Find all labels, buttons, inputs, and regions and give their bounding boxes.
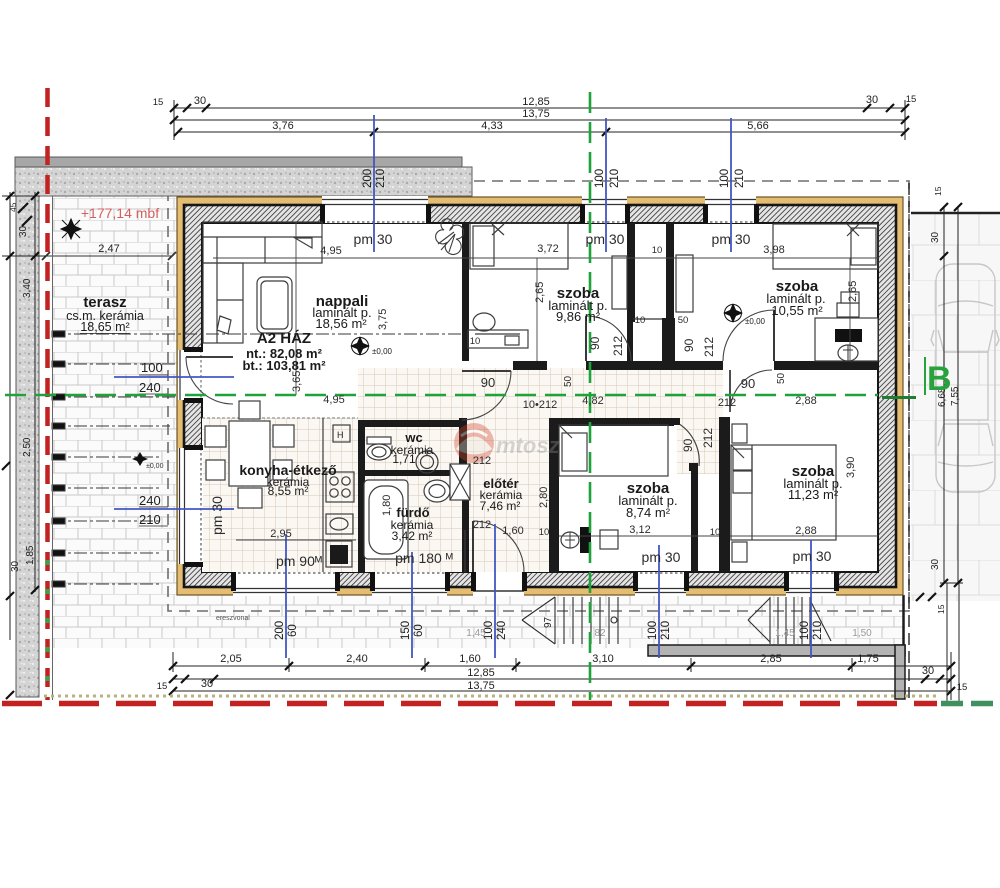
svg-text:90: 90 <box>741 376 755 391</box>
svg-text:4,82: 4,82 <box>582 395 603 407</box>
svg-text:3,12: 3,12 <box>629 524 650 536</box>
svg-text:30: 30 <box>866 94 878 106</box>
svg-text:200: 200 <box>274 621 286 640</box>
svg-text:13,75: 13,75 <box>522 108 550 120</box>
svg-text:10: 10 <box>635 315 646 326</box>
svg-text:15: 15 <box>957 682 968 693</box>
svg-text:pm 90ᴹ: pm 90ᴹ <box>276 553 322 569</box>
svg-text:50: 50 <box>776 372 787 384</box>
svg-text:bt.: 103,81 m²: bt.: 103,81 m² <box>242 358 326 373</box>
svg-text:45: 45 <box>8 202 18 212</box>
svg-text:2,88: 2,88 <box>795 525 816 537</box>
svg-text:60: 60 <box>287 624 299 637</box>
svg-text:2,40: 2,40 <box>346 653 367 665</box>
svg-text:+177,14 mbf: +177,14 mbf <box>81 205 159 221</box>
svg-text:1,50: 1,50 <box>852 628 872 639</box>
svg-text:30: 30 <box>18 225 29 237</box>
svg-text:13,75: 13,75 <box>467 680 495 692</box>
svg-text:9,86 m²: 9,86 m² <box>556 309 601 324</box>
svg-text:15: 15 <box>933 186 943 196</box>
svg-text:pm 30: pm 30 <box>354 231 393 247</box>
svg-text:H: H <box>337 430 344 440</box>
svg-text:3,72: 3,72 <box>537 243 558 255</box>
svg-text:11,23 m²: 11,23 m² <box>788 487 839 502</box>
svg-text:2,80: 2,80 <box>538 487 550 508</box>
svg-text:pm 30: pm 30 <box>793 548 832 564</box>
svg-text:3,42 m²: 3,42 m² <box>392 529 433 543</box>
svg-text:50: 50 <box>678 315 689 326</box>
svg-text:2,47: 2,47 <box>98 243 119 255</box>
svg-text:240: 240 <box>139 493 161 508</box>
svg-text:3,98: 3,98 <box>763 244 784 256</box>
svg-text:2,65: 2,65 <box>847 281 859 302</box>
svg-text:B: B <box>927 360 952 398</box>
svg-text:15: 15 <box>906 94 917 105</box>
svg-text:10: 10 <box>539 527 550 538</box>
svg-text:30: 30 <box>922 665 934 677</box>
svg-text:4,33: 4,33 <box>481 120 502 132</box>
svg-text:3,90: 3,90 <box>845 457 857 478</box>
svg-text:212: 212 <box>701 428 715 448</box>
svg-text:150: 150 <box>400 621 412 640</box>
svg-text:8,55 m²: 8,55 m² <box>268 484 309 498</box>
svg-text:7,55: 7,55 <box>950 386 961 406</box>
svg-text:240: 240 <box>496 621 508 640</box>
svg-text:100: 100 <box>647 621 659 640</box>
svg-text:210: 210 <box>812 621 824 640</box>
svg-text:97: 97 <box>543 616 554 628</box>
svg-text:30: 30 <box>194 95 206 107</box>
svg-text:210: 210 <box>660 621 672 640</box>
svg-text:100: 100 <box>141 360 163 375</box>
svg-text:60: 60 <box>413 624 425 637</box>
svg-text:A2 HÁZ: A2 HÁZ <box>257 330 311 347</box>
svg-text:2,50: 2,50 <box>22 437 33 457</box>
svg-text:12,85: 12,85 <box>522 96 550 108</box>
svg-text:pm 30: pm 30 <box>586 231 625 247</box>
svg-text:4,95: 4,95 <box>323 394 344 406</box>
svg-text:1,75: 1,75 <box>857 653 878 665</box>
svg-text:210: 210 <box>139 512 161 527</box>
svg-text:212: 212 <box>473 519 491 531</box>
svg-text:10: 10 <box>470 336 481 347</box>
svg-text:15: 15 <box>153 97 164 108</box>
svg-text:pm 180 ᴹ: pm 180 ᴹ <box>395 550 453 566</box>
svg-text:212: 212 <box>611 336 625 356</box>
svg-text:30: 30 <box>10 560 21 572</box>
svg-text:100: 100 <box>719 169 731 188</box>
svg-text:90: 90 <box>682 338 696 352</box>
svg-text:3,40: 3,40 <box>22 278 33 298</box>
svg-text:mtosz: mtosz <box>496 433 560 458</box>
svg-text:210: 210 <box>375 169 387 188</box>
svg-text:3,65: 3,65 <box>291 371 303 392</box>
svg-text:pm 30: pm 30 <box>642 549 681 565</box>
svg-text:1,71: 1,71 <box>392 452 416 466</box>
svg-text:1,80: 1,80 <box>381 495 393 516</box>
svg-text:18,56 m²: 18,56 m² <box>315 316 367 331</box>
svg-text:±0,00: ±0,00 <box>372 347 393 356</box>
svg-text:3,75: 3,75 <box>377 309 389 330</box>
svg-text:212: 212 <box>718 397 736 409</box>
svg-text:±0,00: ±0,00 <box>146 463 164 470</box>
svg-text:2,85: 2,85 <box>760 653 781 665</box>
svg-text:30: 30 <box>201 678 213 690</box>
svg-text:18,65 m²: 18,65 m² <box>80 320 129 334</box>
svg-text:1,45: 1,45 <box>466 628 486 639</box>
svg-text:30: 30 <box>930 558 941 570</box>
svg-text:12,85: 12,85 <box>467 667 495 679</box>
svg-text:100: 100 <box>799 621 811 640</box>
svg-text:1,60: 1,60 <box>459 653 480 665</box>
svg-text:pm 30: pm 30 <box>712 231 751 247</box>
svg-text:15: 15 <box>936 604 946 614</box>
svg-text:90: 90 <box>588 336 602 350</box>
svg-text:90: 90 <box>481 375 495 390</box>
svg-text:2,05: 2,05 <box>220 653 241 665</box>
svg-text:8,74 m²: 8,74 m² <box>626 505 671 520</box>
svg-text:200: 200 <box>362 169 374 188</box>
svg-text:1,45: 1,45 <box>775 628 795 639</box>
svg-text:10: 10 <box>652 245 663 256</box>
svg-text:30: 30 <box>930 231 941 243</box>
svg-text:10,55 m²: 10,55 m² <box>771 303 823 318</box>
svg-text:5,66: 5,66 <box>747 120 768 132</box>
svg-text:pm 30: pm 30 <box>209 496 225 535</box>
svg-text:50: 50 <box>563 375 574 387</box>
svg-text:7,46 m²: 7,46 m² <box>480 499 521 513</box>
svg-text:4,95: 4,95 <box>320 245 341 257</box>
svg-text:15: 15 <box>157 681 168 692</box>
svg-text:210: 210 <box>734 169 746 188</box>
svg-text:±0,00: ±0,00 <box>745 317 766 326</box>
svg-text:2,95: 2,95 <box>270 528 291 540</box>
svg-text:10•212: 10•212 <box>523 399 557 411</box>
svg-text:212: 212 <box>473 455 491 467</box>
svg-text:210: 210 <box>609 169 621 188</box>
svg-text:3,76: 3,76 <box>272 120 293 132</box>
svg-text:2,88: 2,88 <box>795 395 816 407</box>
svg-text:82: 82 <box>594 628 606 639</box>
svg-text:240: 240 <box>139 380 161 395</box>
svg-text:212: 212 <box>702 337 716 357</box>
svg-text:2,65: 2,65 <box>534 282 546 303</box>
svg-text:1,85: 1,85 <box>25 545 36 565</box>
svg-text:90: 90 <box>681 438 695 452</box>
svg-text:ereszvonal: ereszvonal <box>216 615 250 622</box>
svg-text:1,60: 1,60 <box>502 525 523 537</box>
svg-text:100: 100 <box>594 169 606 188</box>
svg-text:3,10: 3,10 <box>592 653 613 665</box>
